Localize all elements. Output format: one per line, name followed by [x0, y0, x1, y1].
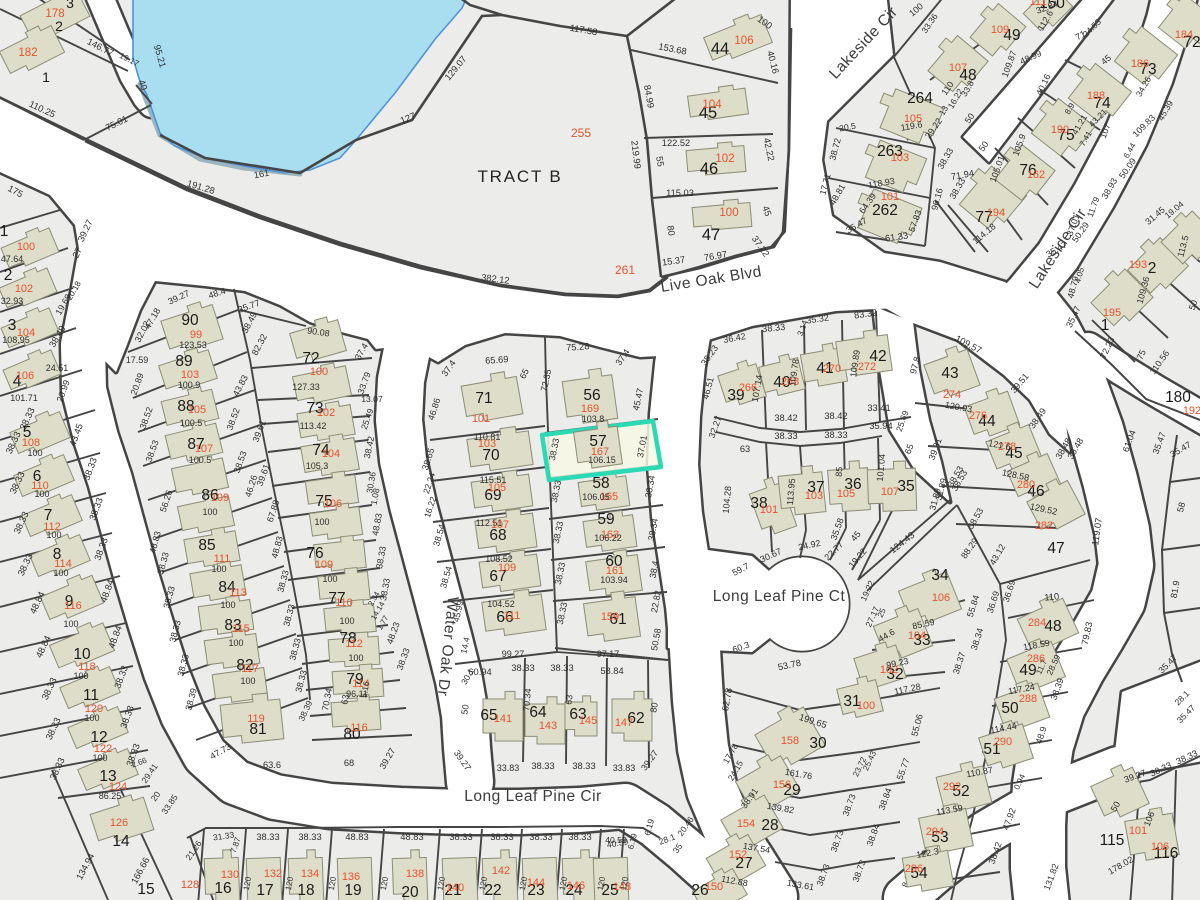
- svg-text:106: 106: [932, 592, 950, 604]
- svg-text:140: 140: [446, 882, 464, 894]
- svg-text:109: 109: [211, 492, 229, 504]
- svg-text:38.33: 38.33: [256, 832, 279, 842]
- svg-text:127.33: 127.33: [292, 382, 320, 392]
- svg-text:97.17: 97.17: [597, 649, 620, 659]
- svg-text:14: 14: [112, 833, 130, 850]
- svg-text:106.15: 106.15: [588, 455, 616, 465]
- svg-text:103.94: 103.94: [600, 575, 628, 585]
- svg-text:30: 30: [809, 735, 827, 752]
- svg-text:56: 56: [583, 387, 600, 404]
- svg-text:194: 194: [987, 207, 1005, 219]
- svg-text:48: 48: [1044, 618, 1061, 635]
- svg-text:104: 104: [908, 630, 926, 642]
- svg-text:100: 100: [34, 489, 49, 499]
- svg-text:24.51: 24.51: [46, 363, 69, 373]
- svg-text:192: 192: [1183, 405, 1200, 417]
- svg-text:106: 106: [734, 35, 753, 47]
- svg-text:100.5: 100.5: [180, 418, 203, 428]
- svg-text:102: 102: [715, 153, 734, 165]
- svg-text:107: 107: [491, 519, 509, 531]
- svg-text:113.42: 113.42: [300, 421, 327, 431]
- svg-text:143: 143: [539, 720, 557, 732]
- svg-text:48.83: 48.83: [400, 832, 423, 842]
- svg-text:33.83: 33.83: [497, 763, 520, 773]
- svg-text:43: 43: [941, 365, 958, 382]
- svg-text:119: 119: [247, 713, 265, 725]
- svg-text:11: 11: [83, 687, 99, 704]
- svg-text:255: 255: [571, 126, 591, 140]
- svg-text:109: 109: [315, 559, 333, 571]
- svg-text:20: 20: [401, 884, 419, 900]
- svg-text:138: 138: [406, 868, 424, 880]
- svg-text:15: 15: [137, 881, 154, 898]
- svg-text:50: 50: [459, 704, 471, 716]
- svg-text:134: 134: [301, 868, 319, 880]
- svg-text:38.33: 38.33: [298, 832, 321, 842]
- svg-text:58: 58: [592, 475, 609, 492]
- svg-text:186: 186: [1131, 58, 1149, 70]
- svg-text:107: 107: [949, 62, 967, 74]
- svg-text:85: 85: [198, 537, 215, 554]
- svg-text:106: 106: [1151, 841, 1169, 853]
- svg-text:65.69: 65.69: [485, 354, 509, 366]
- svg-text:146: 146: [567, 880, 585, 892]
- svg-text:105.3: 105.3: [306, 461, 329, 471]
- svg-text:40.59: 40.59: [605, 835, 627, 845]
- svg-text:47: 47: [1047, 540, 1064, 557]
- svg-text:100: 100: [240, 676, 255, 686]
- svg-text:100: 100: [348, 653, 363, 663]
- svg-text:101: 101: [760, 504, 778, 516]
- svg-text:33.83: 33.83: [613, 763, 636, 773]
- svg-text:38.42: 38.42: [774, 413, 797, 423]
- svg-text:3: 3: [8, 317, 17, 334]
- svg-text:100: 100: [84, 713, 99, 723]
- svg-text:13.07: 13.07: [361, 394, 383, 404]
- svg-text:16: 16: [214, 880, 231, 897]
- svg-text:128: 128: [181, 879, 199, 891]
- svg-text:90: 90: [181, 312, 199, 329]
- svg-text:141: 141: [494, 713, 512, 725]
- svg-text:115: 115: [232, 623, 250, 635]
- svg-text:75.28: 75.28: [566, 341, 590, 353]
- svg-text:28: 28: [761, 817, 778, 834]
- svg-text:111: 111: [504, 610, 521, 622]
- svg-text:282: 282: [1035, 520, 1053, 532]
- svg-text:100: 100: [63, 619, 78, 629]
- svg-text:180: 180: [1165, 389, 1191, 406]
- svg-text:100: 100: [211, 564, 226, 574]
- svg-text:35.94: 35.94: [869, 421, 892, 431]
- svg-text:58.84: 58.84: [600, 666, 623, 676]
- svg-text:102: 102: [317, 407, 335, 419]
- svg-text:101: 101: [1129, 825, 1147, 837]
- svg-text:294: 294: [926, 826, 944, 838]
- svg-text:162: 162: [1027, 169, 1045, 181]
- svg-text:116: 116: [350, 722, 368, 734]
- svg-text:71: 71: [475, 390, 492, 407]
- svg-text:195: 195: [1103, 307, 1121, 319]
- svg-text:110: 110: [1044, 591, 1060, 602]
- svg-text:99.27: 99.27: [502, 649, 525, 659]
- svg-text:100: 100: [310, 366, 328, 378]
- svg-text:272: 272: [858, 361, 876, 373]
- svg-text:100: 100: [92, 753, 107, 763]
- svg-text:288: 288: [1019, 693, 1037, 705]
- svg-text:47.64: 47.64: [1, 254, 24, 264]
- svg-text:147: 147: [615, 717, 633, 729]
- svg-text:38.33: 38.33: [490, 832, 513, 842]
- svg-text:38.33: 38.33: [572, 761, 595, 771]
- svg-text:TRACT B: TRACT B: [477, 167, 562, 186]
- svg-text:115.03: 115.03: [666, 188, 694, 198]
- svg-text:38.33: 38.33: [568, 832, 591, 842]
- svg-text:Long Leaf Pine Cir: Long Leaf Pine Cir: [464, 788, 601, 805]
- svg-text:63: 63: [740, 444, 750, 454]
- svg-text:284: 284: [1028, 617, 1046, 629]
- svg-text:270: 270: [823, 363, 841, 375]
- svg-text:142: 142: [492, 865, 510, 877]
- svg-text:38.33: 38.33: [529, 832, 552, 842]
- svg-text:130: 130: [221, 869, 239, 881]
- svg-text:112: 112: [345, 638, 363, 650]
- svg-text:261: 261: [615, 263, 635, 277]
- svg-text:64: 64: [529, 704, 547, 721]
- svg-text:116: 116: [64, 600, 82, 612]
- svg-text:123.53: 123.53: [179, 340, 207, 350]
- svg-text:72: 72: [302, 350, 319, 367]
- svg-text:110: 110: [335, 597, 353, 609]
- svg-text:136: 136: [342, 871, 360, 883]
- svg-text:144: 144: [527, 877, 545, 889]
- svg-text:38.33: 38.33: [449, 832, 472, 842]
- svg-text:100.5: 100.5: [189, 455, 212, 465]
- svg-text:106: 106: [324, 498, 342, 510]
- svg-text:100: 100: [314, 517, 329, 527]
- svg-text:100: 100: [27, 448, 42, 458]
- svg-text:122.52: 122.52: [662, 138, 690, 148]
- svg-text:126: 126: [110, 817, 128, 829]
- svg-text:108.95: 108.95: [2, 335, 30, 345]
- svg-text:17.59: 17.59: [126, 355, 149, 365]
- svg-text:44: 44: [711, 40, 729, 58]
- svg-text:132: 132: [264, 868, 282, 880]
- svg-text:48.83: 48.83: [345, 832, 368, 842]
- svg-text:262: 262: [872, 202, 898, 219]
- svg-text:2: 2: [55, 18, 63, 34]
- svg-text:Long Leaf Pine Ct: Long Leaf Pine Ct: [713, 588, 846, 605]
- svg-text:109: 109: [991, 24, 1009, 36]
- svg-text:17: 17: [256, 882, 273, 899]
- svg-text:100.9: 100.9: [178, 380, 201, 390]
- svg-text:32.93: 32.93: [1, 296, 24, 306]
- svg-text:100: 100: [228, 638, 243, 648]
- svg-text:101: 101: [472, 413, 490, 425]
- svg-text:80: 80: [648, 702, 660, 714]
- svg-text:68: 68: [344, 758, 354, 768]
- svg-text:1: 1: [1101, 317, 1110, 334]
- svg-text:2: 2: [4, 267, 13, 284]
- svg-text:100: 100: [202, 507, 217, 517]
- svg-text:190: 190: [1051, 124, 1069, 136]
- svg-text:154: 154: [737, 818, 755, 830]
- svg-text:264: 264: [907, 90, 933, 107]
- svg-text:1: 1: [0, 223, 8, 240]
- svg-text:38.33: 38.33: [550, 663, 573, 673]
- svg-text:38.33: 38.33: [511, 663, 534, 673]
- svg-text:100: 100: [220, 600, 235, 610]
- svg-text:100: 100: [322, 574, 337, 584]
- svg-text:55: 55: [654, 156, 666, 168]
- svg-text:60.94: 60.94: [468, 667, 491, 677]
- svg-text:104: 104: [702, 99, 722, 111]
- svg-text:105: 105: [488, 482, 506, 494]
- svg-text:100: 100: [46, 530, 61, 540]
- svg-text:85: 85: [834, 466, 845, 477]
- svg-text:100: 100: [73, 671, 88, 681]
- svg-text:100: 100: [857, 700, 875, 712]
- svg-text:184: 184: [1175, 29, 1193, 41]
- svg-text:103: 103: [478, 438, 496, 450]
- svg-text:159: 159: [601, 611, 619, 623]
- svg-text:103: 103: [891, 152, 909, 164]
- svg-text:47: 47: [702, 226, 720, 244]
- svg-text:107: 107: [881, 486, 899, 498]
- svg-text:38.42: 38.42: [824, 411, 847, 421]
- svg-text:63: 63: [564, 694, 575, 705]
- svg-text:80: 80: [665, 225, 676, 237]
- svg-text:19: 19: [344, 882, 361, 899]
- svg-text:115: 115: [1100, 832, 1125, 849]
- svg-text:33.41: 33.41: [867, 403, 890, 413]
- svg-text:100: 100: [17, 241, 35, 253]
- svg-text:106: 106: [16, 370, 34, 382]
- svg-text:38.33: 38.33: [531, 761, 554, 771]
- svg-text:102: 102: [15, 283, 33, 295]
- svg-text:89: 89: [175, 353, 192, 370]
- svg-text:18: 18: [297, 882, 314, 899]
- svg-text:3: 3: [66, 0, 74, 11]
- svg-text:117: 117: [241, 663, 259, 675]
- svg-text:104: 104: [322, 448, 340, 460]
- svg-text:86.25: 86.25: [99, 791, 122, 801]
- svg-text:103.8: 103.8: [582, 414, 605, 424]
- svg-text:107: 107: [195, 443, 213, 455]
- svg-text:106.05: 106.05: [582, 492, 610, 502]
- svg-text:63: 63: [339, 694, 351, 706]
- svg-text:105: 105: [188, 404, 206, 416]
- svg-text:105: 105: [837, 488, 855, 500]
- svg-text:109: 109: [498, 562, 516, 574]
- svg-text:1: 1: [42, 69, 50, 85]
- svg-text:104.52: 104.52: [487, 599, 515, 609]
- svg-text:100: 100: [339, 616, 354, 626]
- svg-text:38.33: 38.33: [774, 431, 797, 441]
- svg-text:290: 290: [994, 736, 1012, 748]
- svg-text:182: 182: [18, 47, 37, 59]
- svg-text:106.22: 106.22: [594, 533, 622, 543]
- svg-text:100: 100: [719, 207, 738, 219]
- svg-text:34: 34: [931, 567, 949, 584]
- svg-text:145: 145: [579, 715, 597, 727]
- svg-text:188: 188: [1087, 90, 1105, 102]
- svg-text:158: 158: [781, 735, 799, 747]
- svg-text:2: 2: [1148, 260, 1157, 277]
- svg-text:101.71: 101.71: [10, 393, 38, 403]
- svg-text:296: 296: [905, 863, 923, 875]
- svg-text:193: 193: [1129, 259, 1147, 271]
- svg-text:35: 35: [897, 478, 914, 495]
- svg-text:156: 156: [773, 779, 791, 791]
- svg-text:50: 50: [1001, 700, 1019, 717]
- svg-text:38.33: 38.33: [824, 430, 847, 440]
- svg-text:63.6: 63.6: [263, 760, 281, 770]
- svg-text:101: 101: [881, 191, 899, 203]
- svg-text:113: 113: [229, 587, 247, 599]
- svg-text:292: 292: [943, 781, 961, 793]
- svg-text:100: 100: [53, 568, 68, 578]
- svg-text:103: 103: [805, 490, 823, 502]
- svg-text:59: 59: [597, 511, 614, 528]
